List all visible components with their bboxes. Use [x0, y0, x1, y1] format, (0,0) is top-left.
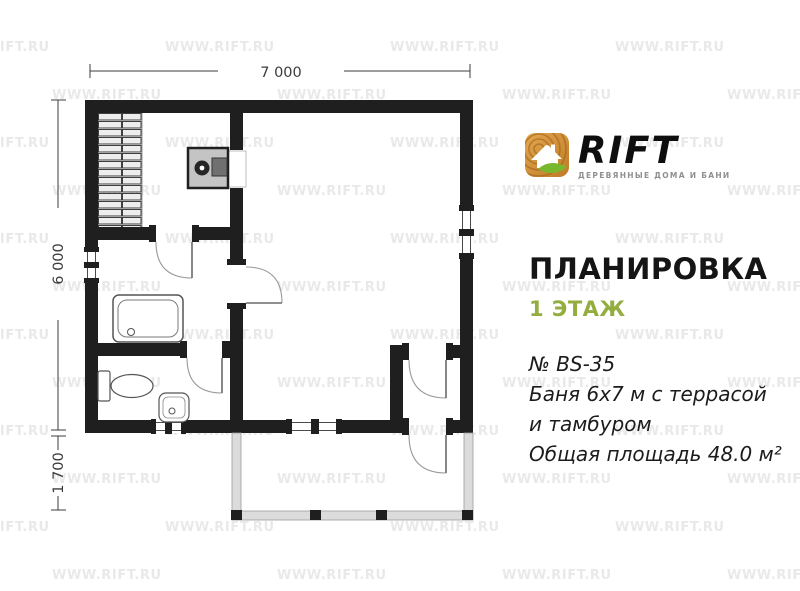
door-main-room — [246, 267, 282, 303]
dimension-width: 7 000 — [90, 64, 470, 81]
plan-description-line: и тамбуром — [529, 409, 782, 439]
shower-tray — [113, 295, 183, 342]
jamb — [446, 343, 453, 360]
terrace — [231, 433, 473, 520]
stove-tunnel — [228, 151, 246, 187]
logo-tagline: ДЕРЕВЯННЫЕ ДОМА И БАНИ — [578, 171, 730, 180]
door-sauna — [156, 242, 192, 278]
plan-number: № BS-35 — [529, 349, 782, 379]
jamb — [180, 341, 187, 358]
wall-interior-vertical-a — [230, 113, 243, 150]
plan-description: № BS-35 Баня 6х7 м с террасой и тамбуром… — [529, 349, 782, 469]
stove-burner-center — [200, 166, 205, 171]
dimension-terrace-label: 1 700 — [51, 452, 67, 494]
stove-firebox — [212, 158, 227, 176]
wall-bottom-left — [85, 420, 402, 433]
rift-logo: RIFT ДЕРЕВЯННЫЕ ДОМА И БАНИ — [524, 132, 730, 180]
window-main-room — [286, 419, 342, 434]
door-wc — [187, 358, 222, 393]
dimension-depth-label: 6 000 — [51, 243, 67, 285]
wall-vestibule-right — [453, 345, 463, 358]
wall-vestibule-stub — [390, 345, 403, 358]
wall-wc-left — [98, 343, 180, 356]
dimension-terrace: 1 700 — [51, 436, 67, 510]
fixtures — [98, 295, 189, 422]
door-vestibule — [409, 360, 446, 398]
terrace-edge-left — [232, 433, 241, 520]
jamb — [222, 341, 230, 358]
wall-interior-vertical-c — [230, 303, 243, 420]
plan-total-area: Общая площадь 48.0 м² — [529, 439, 782, 469]
page-title: ПЛАНИРОВКА — [529, 252, 768, 286]
terrace-edge-right — [464, 433, 473, 520]
floor-plan: 7 000 6 000 1 700 — [0, 0, 800, 591]
wall-bottom-right — [453, 420, 473, 433]
wall-interior-vertical-b — [230, 188, 243, 265]
window-left-wall — [84, 247, 99, 283]
terrace-edge-bottom — [232, 511, 473, 520]
dimension-width-label: 7 000 — [260, 65, 302, 81]
jamb — [192, 225, 199, 242]
wall-sauna-left — [98, 227, 149, 240]
jamb — [402, 343, 409, 360]
jamb — [402, 418, 409, 435]
floor-label: 1 ЭТАЖ — [529, 297, 626, 321]
plan-description-line: Баня 6х7 м с террасой — [529, 379, 782, 409]
jamb — [446, 418, 453, 435]
sink — [159, 393, 189, 422]
window-right-wall — [459, 205, 474, 259]
logo-brand-text: RIFT — [578, 133, 730, 169]
jamb — [227, 259, 246, 265]
wall-sauna-right — [199, 227, 230, 240]
sauna-benches — [98, 113, 142, 232]
wall-right — [460, 100, 473, 433]
wood-log-house-leaf-icon — [524, 132, 570, 178]
dimension-depth: 6 000 — [51, 100, 67, 430]
sauna-stove — [188, 148, 246, 188]
toilet — [98, 371, 153, 401]
jamb — [227, 303, 246, 309]
door-terrace — [409, 435, 446, 473]
screenshot-root: WWW.RIFT.RUWWW.RIFT.RUWWW.RIFT.RUWWW.RIF… — [0, 0, 800, 591]
jamb — [149, 225, 156, 242]
wall-top — [85, 100, 473, 113]
